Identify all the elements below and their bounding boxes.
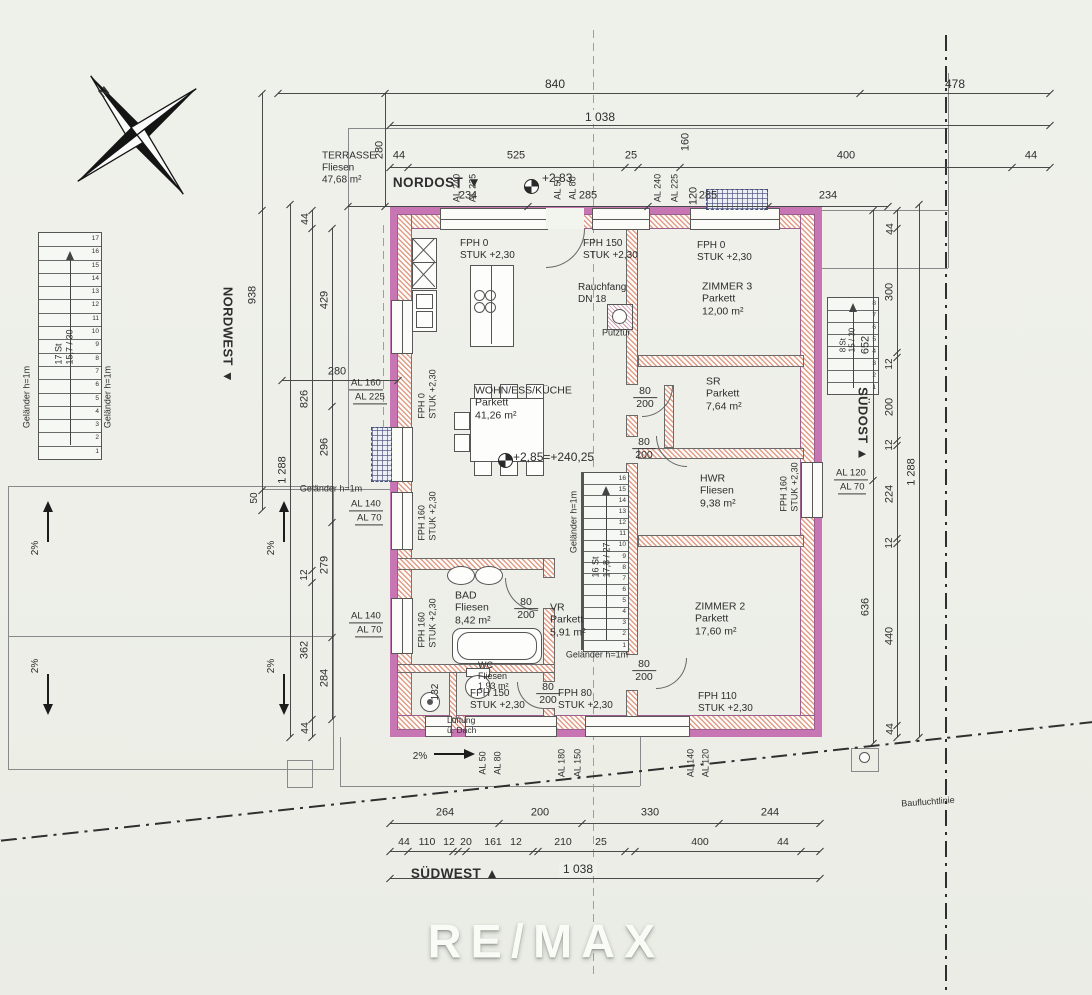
- roof-outline-right-v: [948, 73, 949, 268]
- door-dim-z2: 80200: [632, 658, 656, 684]
- slope-a-label: 2%: [30, 541, 42, 555]
- dir-suedost: SÜDOST ▲: [855, 387, 870, 461]
- al-225-left: AL 225: [353, 391, 387, 404]
- utility-box-left: [287, 760, 313, 788]
- entry-door-opening: [546, 208, 584, 229]
- window-north-zimmer3: [690, 208, 780, 230]
- window-north-living: [440, 208, 548, 230]
- stair-number: 14: [619, 497, 626, 504]
- dimline-right-2: [897, 210, 898, 737]
- putztuer-label: Putztür: [602, 328, 631, 339]
- wall-bad-vr-1: [543, 558, 555, 578]
- stair-number: 8: [622, 564, 626, 571]
- slope-d-label: 2%: [266, 659, 278, 673]
- stairs-right-label: 8 St15 / 30: [839, 328, 858, 352]
- al-140-left2: AL 140: [349, 610, 383, 623]
- stair-number: 4: [622, 608, 626, 615]
- dim-938: 938: [247, 286, 260, 304]
- dim-284: 284: [319, 669, 332, 687]
- window-west-kitchen: [391, 300, 413, 354]
- dim-234-b: 234: [819, 190, 837, 203]
- slope-arrow-a-icon: [47, 506, 49, 542]
- al-80-t: AL 80: [568, 176, 579, 199]
- dim-400-t: 400: [837, 150, 855, 163]
- room-bad: BADFliesen8,42 m²: [455, 589, 491, 626]
- door-dim-sr: 80200: [633, 385, 657, 411]
- stair-number: 3: [95, 421, 99, 428]
- dim-525: 525: [507, 150, 525, 163]
- roof-outline-right-h: [822, 268, 948, 269]
- chimney-flue: [612, 309, 627, 324]
- window-east-hwr: [801, 462, 823, 518]
- dim-12-r2: 12: [884, 439, 896, 450]
- stair-number: 16: [92, 248, 99, 255]
- dim-244: 244: [761, 807, 779, 820]
- stair-number: 3: [622, 619, 626, 626]
- dimline-left-4: [332, 228, 333, 719]
- dim-210: 210: [554, 836, 572, 848]
- al-240-t2: AL 240: [653, 174, 664, 202]
- dim-12-l1: 12: [299, 569, 311, 580]
- window-west-living1: [391, 427, 413, 482]
- dimline-right-3: [919, 204, 920, 737]
- al-50-t: AL 50: [553, 176, 564, 199]
- dim-285-a: 285: [579, 190, 597, 203]
- door-arc-entry: [546, 229, 585, 268]
- railing-int-h: Geländer h=1m: [566, 650, 628, 661]
- stair-direction-arrow-icon: [849, 299, 857, 312]
- wall-corridor-2: [626, 415, 638, 437]
- stair-number: 7: [622, 575, 626, 582]
- railing-left-plan: Geländer h=1m: [300, 484, 362, 495]
- dimline-bottom-2: [390, 851, 820, 852]
- room-wc: WCFliesen1,93 m²: [478, 660, 509, 692]
- stair-number: 15: [92, 262, 99, 269]
- stair-number: 11: [619, 530, 626, 537]
- dim-44-t2: 44: [1025, 150, 1037, 163]
- dim-478: 478: [945, 77, 965, 91]
- dim-264: 264: [436, 807, 454, 820]
- dim-44-t1: 44: [393, 150, 405, 163]
- slope-arrow-d-icon: [283, 674, 285, 710]
- al-240-t1: AL 240: [452, 174, 463, 202]
- kitchen-sink-drainer: [416, 311, 433, 328]
- dimline-right-1: [873, 210, 874, 743]
- stair-number: 7: [95, 368, 99, 375]
- slope-arrow-c-icon: [47, 674, 49, 710]
- dim-636: 636: [860, 598, 873, 616]
- dim-160-v: 160: [680, 133, 693, 151]
- slope-arrow-b-icon: [283, 506, 285, 542]
- cooktop-burner-4: [485, 302, 496, 313]
- stair-number: 9: [95, 341, 99, 348]
- stair-number: 9: [622, 553, 626, 560]
- terrasse-label: TERRASSEFliesen47,68 m²: [322, 150, 376, 185]
- al-70-left2: AL 70: [355, 624, 383, 637]
- level-main: +2,85=+240,25: [513, 450, 594, 464]
- dim-279: 279: [319, 556, 332, 574]
- stair-number: 13: [619, 508, 626, 515]
- al-225-t2: AL 225: [670, 174, 681, 202]
- boundary-dashdot-line-right: [945, 35, 947, 995]
- south-strip-left: [340, 737, 341, 786]
- railing-int-v: Geländer h=1m: [569, 491, 580, 553]
- dim-300: 300: [884, 283, 897, 301]
- level-marker-entry-icon: [524, 179, 539, 194]
- door-arc-zimmer2: [656, 658, 687, 689]
- stair-number: 5: [95, 395, 99, 402]
- dimline-top-4: [348, 206, 888, 207]
- bathtub-inner: [457, 632, 537, 660]
- al-140-b: AL 140: [686, 749, 697, 777]
- wall-bad-north: [397, 558, 555, 570]
- dim-50: 50: [249, 492, 261, 503]
- dim-362: 362: [299, 641, 312, 659]
- cooktop-burner-1: [474, 290, 485, 301]
- fph-wall-right: FPH 160STUK +2,30: [778, 462, 799, 511]
- dimline-left-1: [262, 93, 263, 510]
- al-120-right: AL 120: [834, 467, 868, 480]
- dim-25-t: 25: [625, 150, 637, 163]
- window-north-small: [592, 208, 650, 230]
- dim-20: 20: [460, 836, 472, 848]
- al-80-b: AL 80: [493, 751, 504, 774]
- watermark: RE/MAX: [428, 913, 665, 968]
- al-70-left1: AL 70: [355, 512, 383, 525]
- dim-12-b2: 12: [510, 836, 522, 848]
- dim-440: 440: [884, 627, 897, 645]
- dim-12-r3: 12: [884, 537, 896, 548]
- dim-400-b: 400: [691, 836, 709, 848]
- bath-sink-1: [447, 566, 475, 585]
- dim-280-terrace: 280: [374, 141, 387, 159]
- level-marker-main-icon: [498, 453, 513, 468]
- stair-number: 12: [619, 519, 626, 526]
- terrace-edge-top: [348, 128, 948, 129]
- fph-living: FPH 0STUK +2,30: [460, 238, 515, 262]
- dimline-top-2: [390, 125, 1050, 126]
- dim-44-b2: 44: [777, 836, 789, 848]
- chair-7: [454, 412, 470, 430]
- stair-tread: [39, 446, 101, 447]
- dim-110: 110: [419, 836, 436, 848]
- window-west-bad: [391, 598, 413, 654]
- window-south-vr: [465, 716, 557, 737]
- stair-number: 11: [92, 315, 99, 322]
- stairs-int-label: 16 St17,8 / 27: [590, 542, 611, 577]
- fph-entry: FPH 150STUK +2,30: [583, 238, 638, 262]
- shutter-box-west: [371, 427, 392, 482]
- room-wohnen: WOHN/ESS/KÜCHEParkett41,26 m²: [475, 384, 572, 421]
- dim-132: 132: [430, 684, 442, 701]
- dim-25-b: 25: [595, 836, 607, 848]
- compass-rose-icon: [57, 55, 217, 215]
- dimline-top-1: [278, 93, 1050, 94]
- dim-224: 224: [884, 485, 897, 503]
- floor-plan-sheet: 1716151413121110987654321161514131211109…: [0, 0, 1092, 995]
- railing-ext-a: Geländer h=1m: [22, 366, 33, 428]
- room-zimmer2: ZIMMER 2Parkett17,60 m²: [695, 600, 745, 637]
- dim-161: 161: [484, 836, 502, 848]
- dir-suedwest: SÜDWEST ▲: [411, 866, 499, 882]
- stair-number: 17: [92, 235, 99, 242]
- dim-200-b: 200: [531, 807, 549, 820]
- dim-44-l1: 44: [299, 213, 311, 225]
- dim-44-r1: 44: [884, 223, 896, 235]
- window-west-living2: [391, 492, 413, 550]
- railing-ext-b: Geländer h=1m: [103, 366, 114, 428]
- dim-12-b1: 12: [443, 836, 455, 848]
- driveway-area: [8, 486, 334, 770]
- dim-12-r1: 12: [884, 358, 896, 369]
- door-arc-hwr: [656, 436, 687, 467]
- stair-number: 1: [622, 642, 626, 649]
- dim-1288-left: 1 288: [277, 456, 290, 484]
- slope-strip-label: 2%: [413, 751, 427, 763]
- wall-corridor-4: [626, 690, 638, 719]
- fph-wall-left3: FPH 160STUK +2,30: [416, 598, 437, 647]
- dim-200-r: 200: [884, 398, 897, 416]
- dim-44-b1: 44: [398, 836, 410, 848]
- dim-826: 826: [299, 390, 312, 408]
- dimline-bottom-1: [390, 823, 820, 824]
- fph-wall-left1: FPH 0STUK +2,30: [416, 369, 437, 418]
- wall-hwr-zimmer2: [638, 535, 804, 547]
- dim-840: 840: [545, 77, 565, 91]
- cooktop-burner-2: [485, 290, 496, 301]
- al-150-b: AL 150: [573, 749, 584, 777]
- wall-zimmer3-sr: [638, 355, 804, 367]
- room-zimmer3: ZIMMER 3Parkett12,00 m²: [702, 280, 752, 317]
- dim-1038-bottom: 1 038: [559, 862, 597, 876]
- fph-zimmer2: FPH 110STUK +2,30: [698, 691, 753, 715]
- rauchfang-label: RauchfangDN 18: [578, 282, 626, 306]
- slope-arrow-strip-icon: [434, 753, 470, 755]
- dim-1038-top: 1 038: [581, 110, 619, 124]
- dim-330: 330: [641, 807, 659, 820]
- fph-zimmer3: FPH 0STUK +2,30: [697, 240, 752, 264]
- al-70-right: AL 70: [838, 481, 866, 494]
- dim-652: 652: [860, 336, 873, 354]
- bath-sink-2: [475, 566, 503, 585]
- dim-1288-right: 1 288: [906, 458, 919, 486]
- room-sr: SRParkett7,64 m²: [706, 375, 742, 412]
- stair-number: 4: [95, 408, 99, 415]
- al-180-b: AL 180: [557, 749, 568, 777]
- window-south-zimmer2: [585, 716, 690, 737]
- wall-wc-lobby: [449, 672, 457, 719]
- door-dim-wc: 80200: [536, 681, 560, 707]
- stair-number: 5: [622, 597, 626, 604]
- chair-8: [454, 434, 470, 452]
- stair-number: 12: [92, 301, 99, 308]
- al-225-t1: AL 225: [468, 174, 479, 202]
- dimline-top-3: [390, 167, 1050, 168]
- stair-number: 8: [95, 355, 99, 362]
- stair-direction-arrow-icon: [602, 482, 610, 495]
- south-strip-right: [640, 737, 641, 786]
- stair-number: 2: [622, 630, 626, 637]
- stair-number: 15: [619, 486, 626, 493]
- al-50-b: AL 50: [478, 751, 489, 774]
- kitchen-sink-basin: [416, 294, 433, 309]
- fph-wall-left2: FPH 160STUK +2,30: [416, 491, 437, 540]
- dim-44-l2: 44: [299, 722, 311, 734]
- cooktop-burner-3: [474, 302, 485, 313]
- dim-296: 296: [319, 438, 332, 456]
- stair-number: 13: [92, 288, 99, 295]
- slope-b-label: 2%: [266, 541, 278, 555]
- utility-box-drain: [859, 752, 870, 763]
- kitchen-unit-x-icon: [412, 238, 435, 287]
- al-140-left1: AL 140: [349, 498, 383, 511]
- slope-c-label: 2%: [30, 659, 42, 673]
- driveway-midline: [8, 636, 332, 637]
- fph-vr: FPH 80STUK +2,30: [558, 688, 613, 712]
- stair-number: 2: [95, 434, 99, 441]
- dim-44-r2: 44: [884, 723, 896, 735]
- dimline-left-3: [312, 210, 313, 737]
- stair-number: 1: [95, 448, 99, 455]
- fph-wc: FPH 150STUK +2,30: [470, 688, 525, 712]
- stair-direction-arrow-icon: [66, 247, 74, 260]
- lueftung-label: Lüftungü. Dach: [447, 715, 476, 735]
- dim-285-b: 285: [699, 190, 717, 203]
- chair-4: [474, 461, 492, 476]
- stair-number: 16: [619, 475, 626, 482]
- door-dim-bad: 80200: [514, 596, 538, 622]
- stair-number: 10: [92, 328, 99, 335]
- stair-number: 6: [95, 381, 99, 388]
- al-160-left: AL 160: [349, 377, 383, 390]
- dimline-left-2: [290, 204, 291, 737]
- stairs-left-label: 17 St15,7 / 30: [53, 329, 74, 364]
- al-120-b: AL 120: [701, 749, 712, 777]
- door-dim-hwr: 80200: [632, 436, 656, 462]
- dir-nordwest: NORDWEST ▼: [220, 287, 235, 383]
- stair-number: 6: [622, 586, 626, 593]
- dim-429: 429: [319, 291, 332, 309]
- stair-number: 14: [92, 275, 99, 282]
- room-vr: VRParkett5,91 m²: [550, 601, 586, 638]
- dim-280-left: 280: [328, 366, 346, 379]
- stair-number: 10: [619, 541, 626, 548]
- room-hwr: HWRFliesen9,38 m²: [700, 472, 736, 509]
